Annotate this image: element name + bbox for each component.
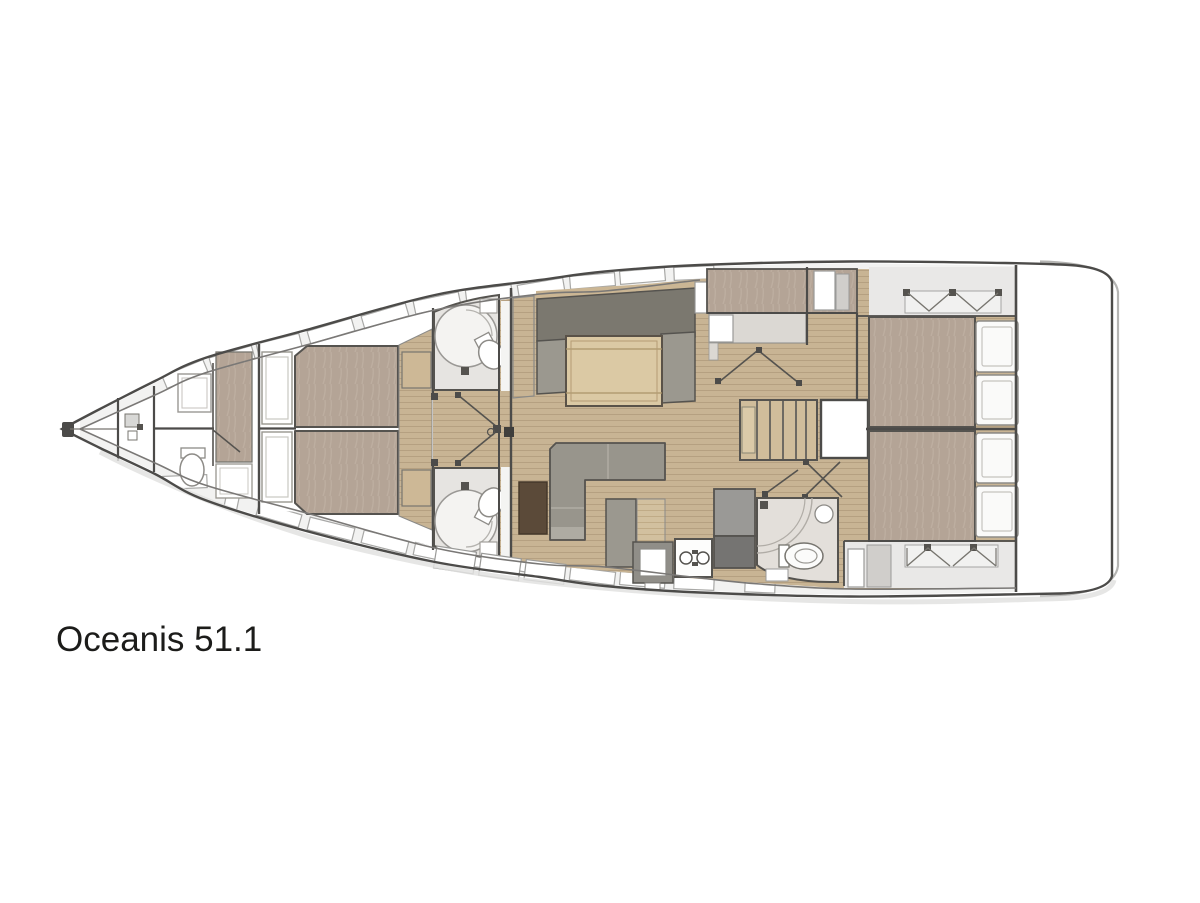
svg-text:Oceanis 51.1: Oceanis 51.1 xyxy=(56,620,262,659)
